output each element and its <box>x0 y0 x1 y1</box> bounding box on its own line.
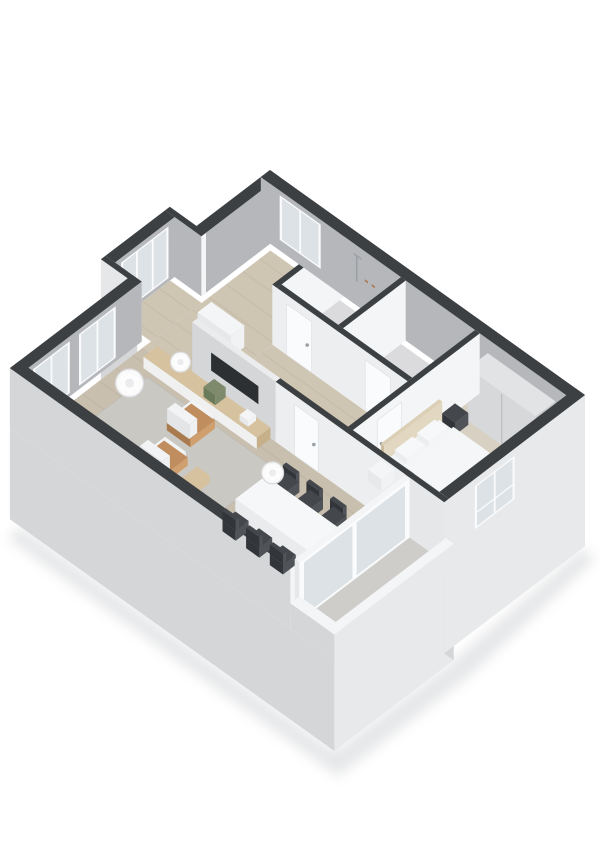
floorplan-3d-render <box>0 0 600 848</box>
door-handle <box>305 343 309 347</box>
pendant-lamp-living-small <box>170 352 190 372</box>
lamp-shade-center <box>125 379 134 388</box>
door-handle <box>312 443 316 447</box>
pendant-lamp-living-large <box>116 369 144 397</box>
wall-hall-bathroom-side <box>272 285 277 348</box>
window-mullion <box>299 210 301 253</box>
window-mullion <box>152 239 154 290</box>
window-mullion <box>494 471 496 513</box>
bay-window-side-right-front <box>201 233 206 297</box>
wall-exterior-ne-detail <box>356 255 358 283</box>
wardrobe-detail <box>501 394 502 445</box>
window-mullion <box>97 321 99 372</box>
pendant-lamp-dining <box>262 461 284 484</box>
lamp-shade-center <box>177 359 183 365</box>
floorplan-3d-viewport[interactable] <box>0 0 600 848</box>
lamp-shade-center <box>269 469 276 476</box>
